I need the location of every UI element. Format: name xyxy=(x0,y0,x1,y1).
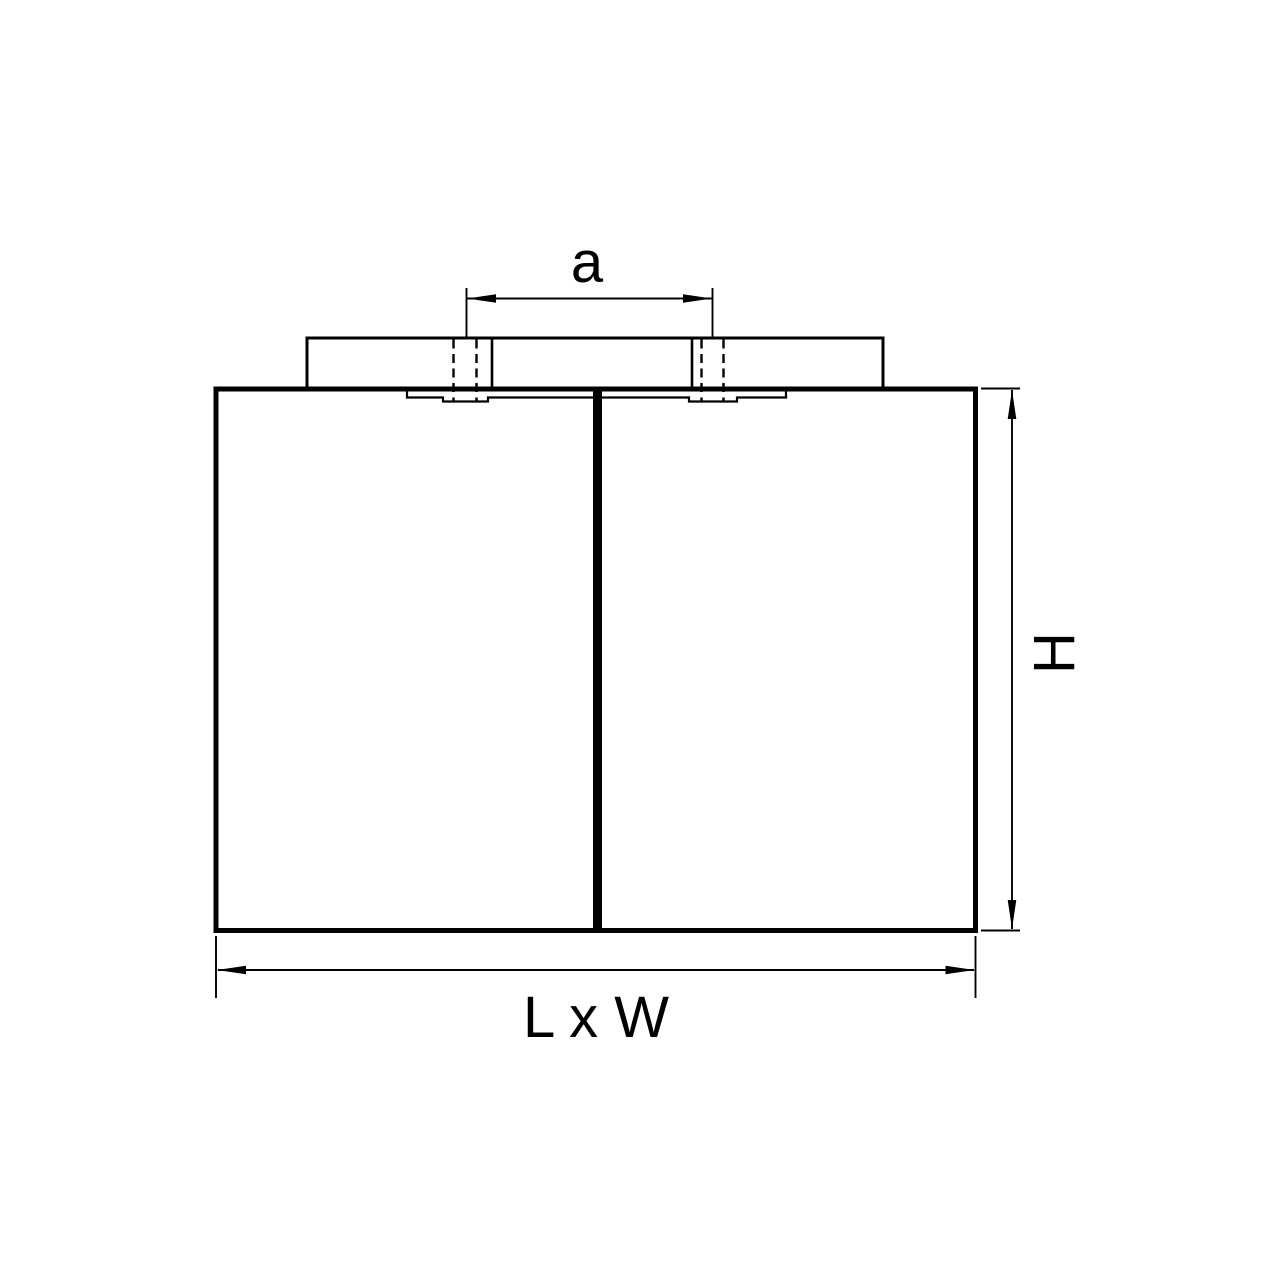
screw-left xyxy=(454,340,477,402)
dimension-height: H xyxy=(981,389,1087,931)
dimension-footprint: L x W xyxy=(216,936,976,1050)
dimension-a: a xyxy=(467,230,713,338)
arrowhead-right xyxy=(683,294,712,303)
fixture-dimension-drawing: a L x W H xyxy=(0,0,1280,1280)
arrowhead-right xyxy=(946,966,975,975)
ceiling-plate xyxy=(307,338,883,389)
ceiling-plate-hatched-section xyxy=(307,338,883,389)
dimension-footprint-label: L x W xyxy=(523,985,669,1050)
drawing-canvas: a L x W H xyxy=(0,0,1280,1280)
arrowhead-bottom xyxy=(1008,900,1017,929)
dimension-height-label: H xyxy=(1022,632,1087,674)
screw-right xyxy=(702,340,724,402)
arrowhead-top xyxy=(1008,390,1017,419)
arrowhead-left xyxy=(467,294,496,303)
arrowhead-left xyxy=(217,966,246,975)
dimension-a-label: a xyxy=(571,230,604,295)
